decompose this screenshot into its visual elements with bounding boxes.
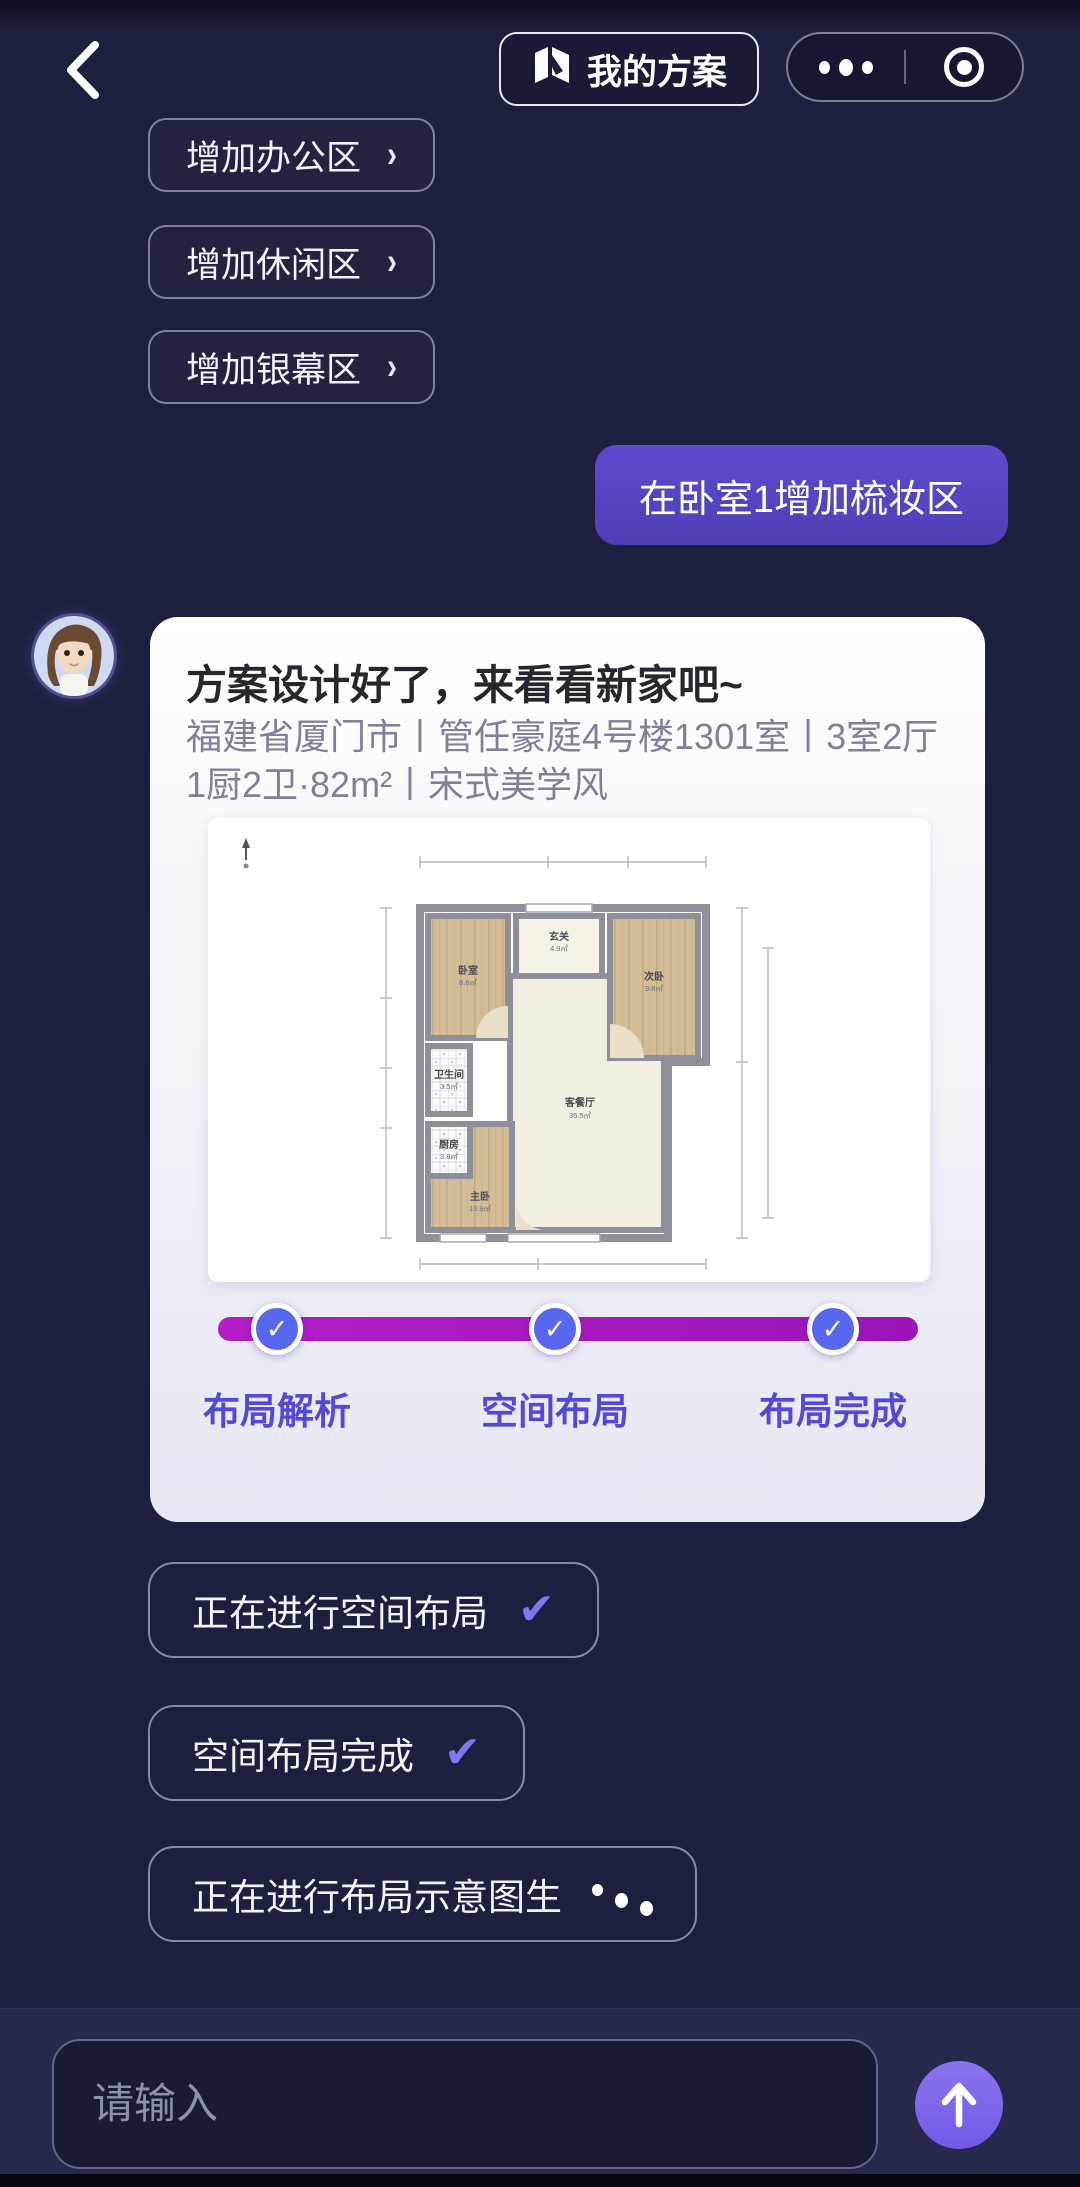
check-icon: ✔ xyxy=(444,1731,481,1775)
status-chip-diagram-generating: 正在进行布局示意图生 xyxy=(148,1846,697,1942)
svg-text:客餐厅: 客餐厅 xyxy=(564,1096,595,1109)
back-button[interactable] xyxy=(52,36,112,106)
user-message-bubble: 在卧室1增加梳妆区 xyxy=(595,445,1008,545)
assistant-plan-card: 方案设计好了，来看看新家吧~ 福建省厦门市丨管任豪庭4号楼1301室丨3室2厅1… xyxy=(150,617,985,1522)
avatar-illustration xyxy=(34,616,114,696)
status-chip-space-layout-done: 空间布局完成 ✔ xyxy=(148,1705,525,1801)
svg-text:卫生间: 卫生间 xyxy=(434,1068,464,1081)
svg-text:8.6㎡: 8.6㎡ xyxy=(459,978,477,987)
svg-text:3.5㎡: 3.5㎡ xyxy=(440,1082,458,1091)
composer-bar xyxy=(0,2008,1080,2187)
floorplan-preview[interactable]: 卧室 玄关 次卧 卫生间 厨房 主卧 客餐厅 8.6㎡ 4.9㎡ 9.8㎡ 3.… xyxy=(208,818,930,1282)
home-indicator-strip xyxy=(0,2174,1080,2187)
user-message-text: 在卧室1增加梳妆区 xyxy=(639,468,964,523)
plans-icon xyxy=(531,45,573,94)
close-button[interactable] xyxy=(906,34,1022,100)
svg-text:卧室: 卧室 xyxy=(458,964,478,977)
chevron-right-icon: › xyxy=(387,134,397,177)
svg-text:厨房: 厨房 xyxy=(439,1138,459,1151)
status-text: 正在进行空间布局 xyxy=(192,1583,488,1637)
my-plans-label: 我的方案 xyxy=(587,44,727,95)
assistant-avatar[interactable] xyxy=(34,616,114,696)
ellipsis-icon xyxy=(819,59,873,76)
svg-text:次卧: 次卧 xyxy=(644,970,664,983)
arrow-up-icon xyxy=(937,2080,981,2131)
svg-text:玄关: 玄关 xyxy=(549,930,569,943)
step-label-parse: 布局解析 xyxy=(167,1381,387,1435)
suggestion-label: 增加休闲区 xyxy=(186,237,361,288)
more-button[interactable] xyxy=(788,34,904,100)
checkpoint-2-icon: ✓ xyxy=(529,1303,581,1355)
check-icon: ✔ xyxy=(518,1588,555,1632)
card-title: 方案设计好了，来看看新家吧~ xyxy=(186,651,743,711)
step-label-done: 布局完成 xyxy=(723,1381,943,1435)
svg-text:9.8㎡: 9.8㎡ xyxy=(645,984,663,993)
svg-text:3.8㎡: 3.8㎡ xyxy=(440,1152,458,1161)
suggestion-add-office[interactable]: 增加办公区 › xyxy=(148,118,435,192)
checkpoint-1-icon: ✓ xyxy=(251,1303,303,1355)
message-input[interactable] xyxy=(52,2039,878,2169)
suggestion-label: 增加办公区 xyxy=(186,130,361,181)
status-chip-space-layout-running: 正在进行空间布局 ✔ xyxy=(148,1562,599,1658)
floorplan-drawing: 卧室 玄关 次卧 卫生间 厨房 主卧 客餐厅 8.6㎡ 4.9㎡ 9.8㎡ 3.… xyxy=(208,818,930,1282)
chevron-left-icon xyxy=(63,39,101,104)
suggestion-label: 增加银幕区 xyxy=(186,342,361,393)
status-text: 空间布局完成 xyxy=(192,1726,414,1780)
svg-text:4.9㎡: 4.9㎡ xyxy=(550,944,568,953)
svg-text:13.9㎡: 13.9㎡ xyxy=(469,1204,492,1213)
checkpoint-3-icon: ✓ xyxy=(807,1303,859,1355)
chevron-right-icon: › xyxy=(387,241,397,284)
send-button[interactable] xyxy=(915,2061,1003,2149)
loading-dots-icon xyxy=(592,1872,653,1916)
suggestion-add-screen[interactable]: 增加银幕区 › xyxy=(148,330,435,404)
chevron-right-icon: › xyxy=(387,346,397,389)
step-label-space: 空间布局 xyxy=(445,1381,665,1435)
suggestion-add-lounge[interactable]: 增加休闲区 › xyxy=(148,225,435,299)
svg-text:35.5㎡: 35.5㎡ xyxy=(569,1111,592,1120)
record-circle-icon xyxy=(944,47,984,87)
status-text: 正在进行布局示意图生 xyxy=(192,1867,562,1921)
chat-screen: 我的方案 增加办公区 › 增加休闲区 › 增加银幕区 › 在卧室1增加梳妆区 xyxy=(0,0,1080,2187)
svg-text:主卧: 主卧 xyxy=(470,1190,490,1203)
miniprogram-capsule xyxy=(786,32,1024,102)
my-plans-button[interactable]: 我的方案 xyxy=(499,32,759,106)
card-subtitle: 福建省厦门市丨管任豪庭4号楼1301室丨3室2厅1厨2卫·82m²丨宋式美学风 xyxy=(186,713,958,809)
